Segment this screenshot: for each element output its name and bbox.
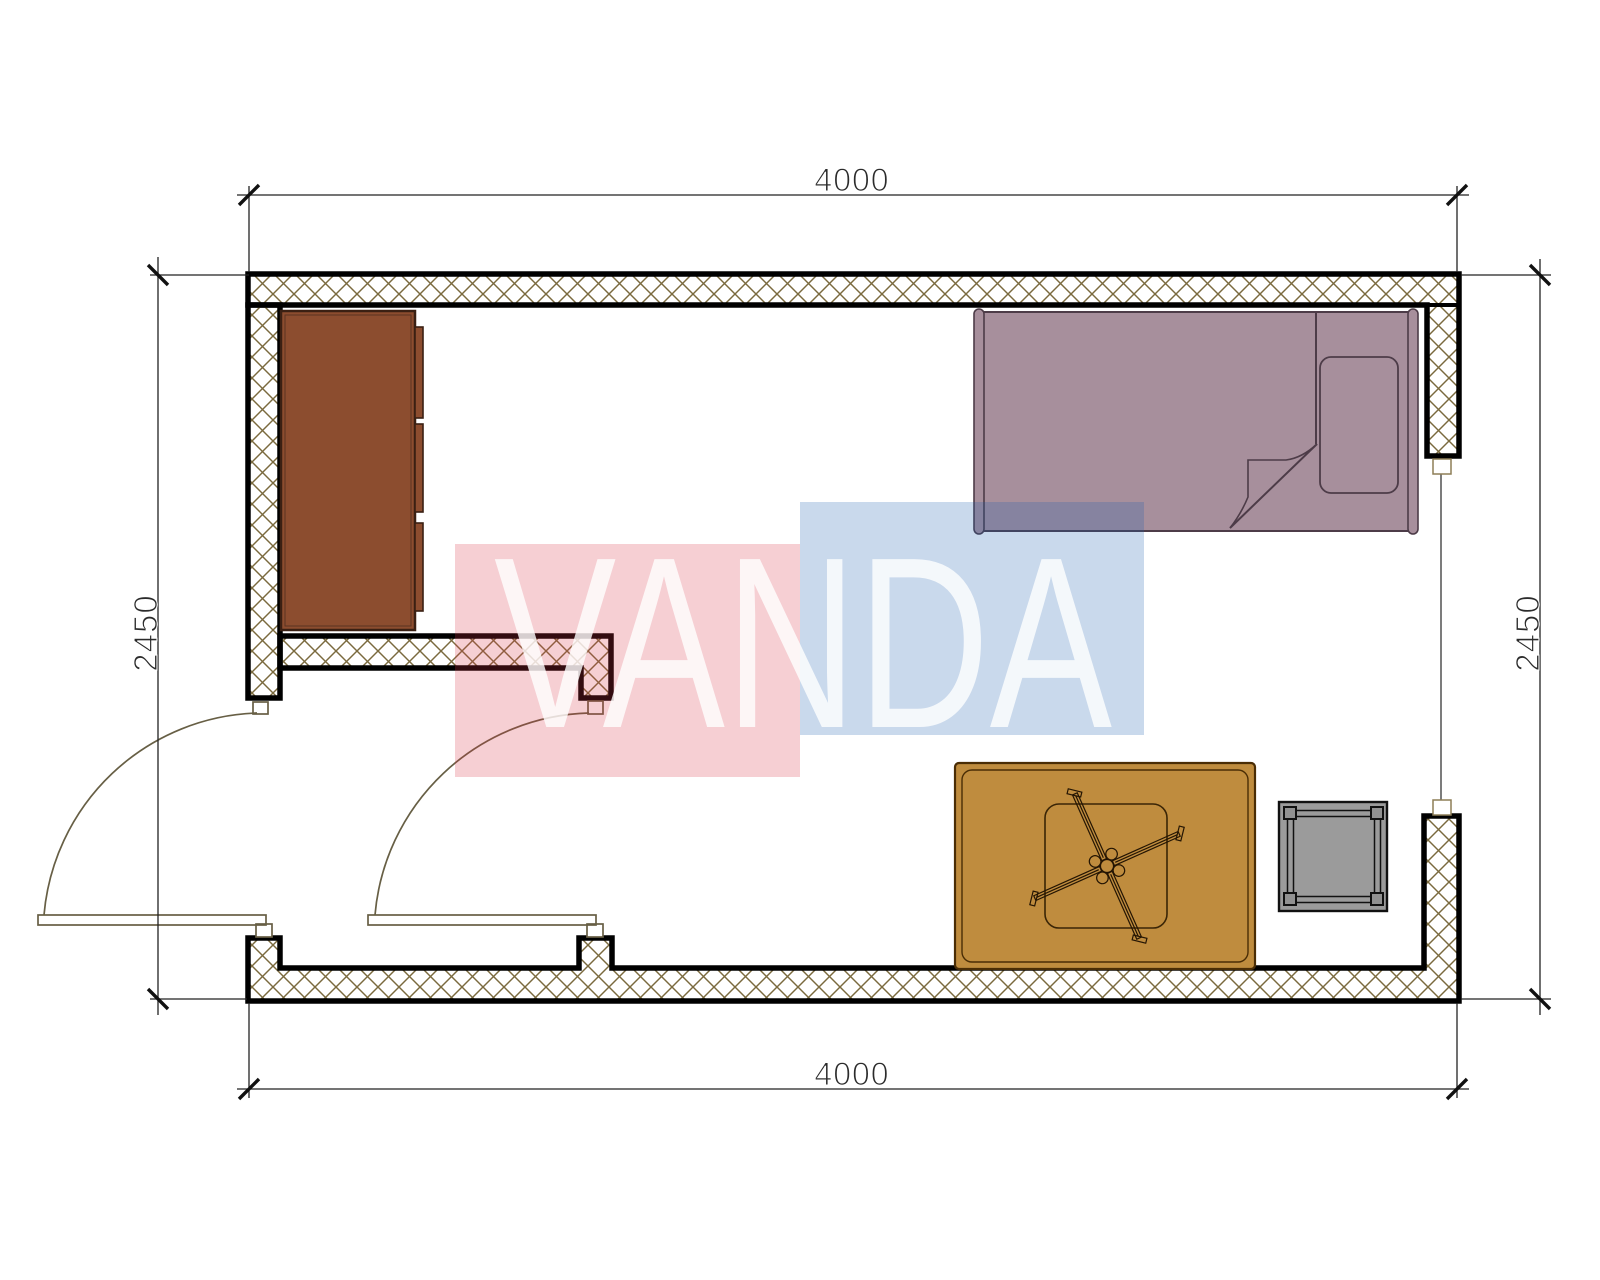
svg-text:VANDA: VANDA — [494, 506, 1112, 779]
svg-text:4000: 4000 — [814, 1056, 889, 1092]
svg-text:2450: 2450 — [127, 594, 164, 671]
svg-text:4000: 4000 — [814, 162, 889, 198]
svg-text:2450: 2450 — [1509, 594, 1546, 671]
